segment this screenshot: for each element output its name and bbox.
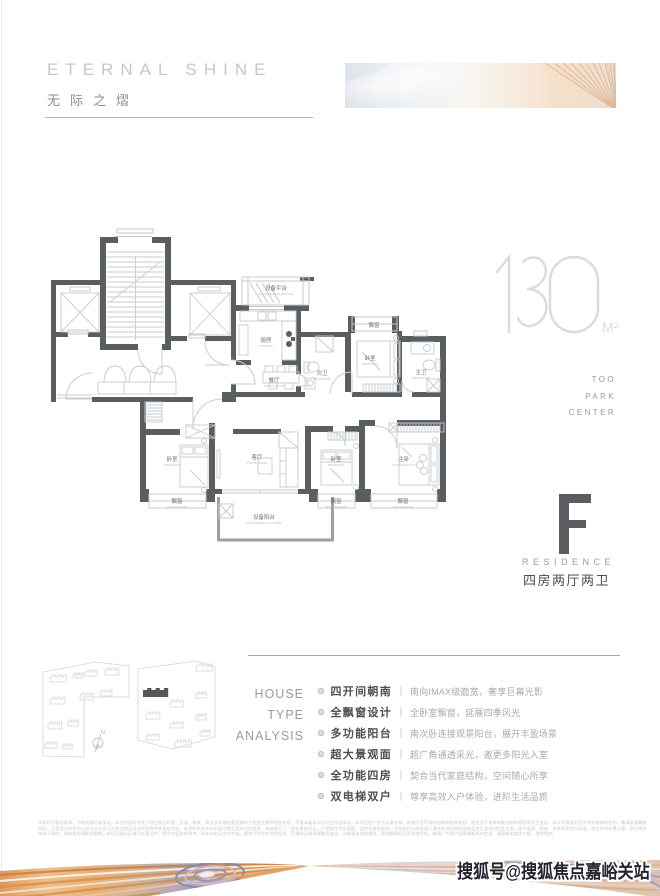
svg-text:EQUIPMENT PLATFORM: EQUIPMENT PLATFORM bbox=[259, 292, 294, 296]
svg-text:飘窗: 飘窗 bbox=[368, 321, 380, 329]
svg-text:次卫: 次卫 bbox=[316, 369, 328, 377]
svg-text:BAY WINDOW: BAY WINDOW bbox=[393, 505, 413, 509]
svg-text:卧室: 卧室 bbox=[330, 455, 342, 463]
svg-text:客厅: 客厅 bbox=[251, 453, 263, 461]
svg-text:餐厅: 餐厅 bbox=[268, 376, 280, 384]
svg-text:飘窗: 飘窗 bbox=[330, 497, 342, 505]
svg-text:LIVING ROOM: LIVING ROOM bbox=[247, 461, 268, 465]
svg-text:BEDROOM: BEDROOM bbox=[164, 463, 180, 467]
svg-text:BEDROOM: BEDROOM bbox=[362, 362, 378, 366]
svg-text:EQUIPMENT PLATFORM: EQUIPMENT PLATFORM bbox=[247, 521, 282, 525]
svg-text:设备平台: 设备平台 bbox=[265, 284, 288, 292]
svg-text:BATHROOM: BATHROOM bbox=[412, 376, 430, 380]
svg-text:主卫: 主卫 bbox=[415, 368, 427, 376]
svg-text:卧室: 卧室 bbox=[166, 455, 178, 463]
svg-text:飘窗: 飘窗 bbox=[397, 497, 409, 505]
svg-text:N: N bbox=[101, 730, 105, 736]
svg-text:厨房: 厨房 bbox=[260, 336, 272, 344]
svg-text:飘窗: 飘窗 bbox=[171, 497, 183, 505]
svg-text:BAY WINDOW: BAY WINDOW bbox=[167, 505, 187, 509]
svg-text:BAY WINDOW: BAY WINDOW bbox=[326, 505, 346, 509]
svg-text:DINING ROOM: DINING ROOM bbox=[264, 384, 285, 388]
svg-text:设备阳台: 设备阳台 bbox=[253, 513, 276, 521]
svg-text:M²: M² bbox=[602, 319, 619, 335]
svg-text:MASTER ROOM: MASTER ROOM bbox=[393, 463, 416, 467]
svg-text:KITCHEN: KITCHEN bbox=[259, 344, 272, 348]
svg-text:BEDROOM: BEDROOM bbox=[328, 463, 344, 467]
svg-text:卧室: 卧室 bbox=[364, 354, 376, 362]
svg-text:BATHROOM: BATHROOM bbox=[313, 377, 331, 381]
svg-text:主卧: 主卧 bbox=[398, 455, 410, 463]
